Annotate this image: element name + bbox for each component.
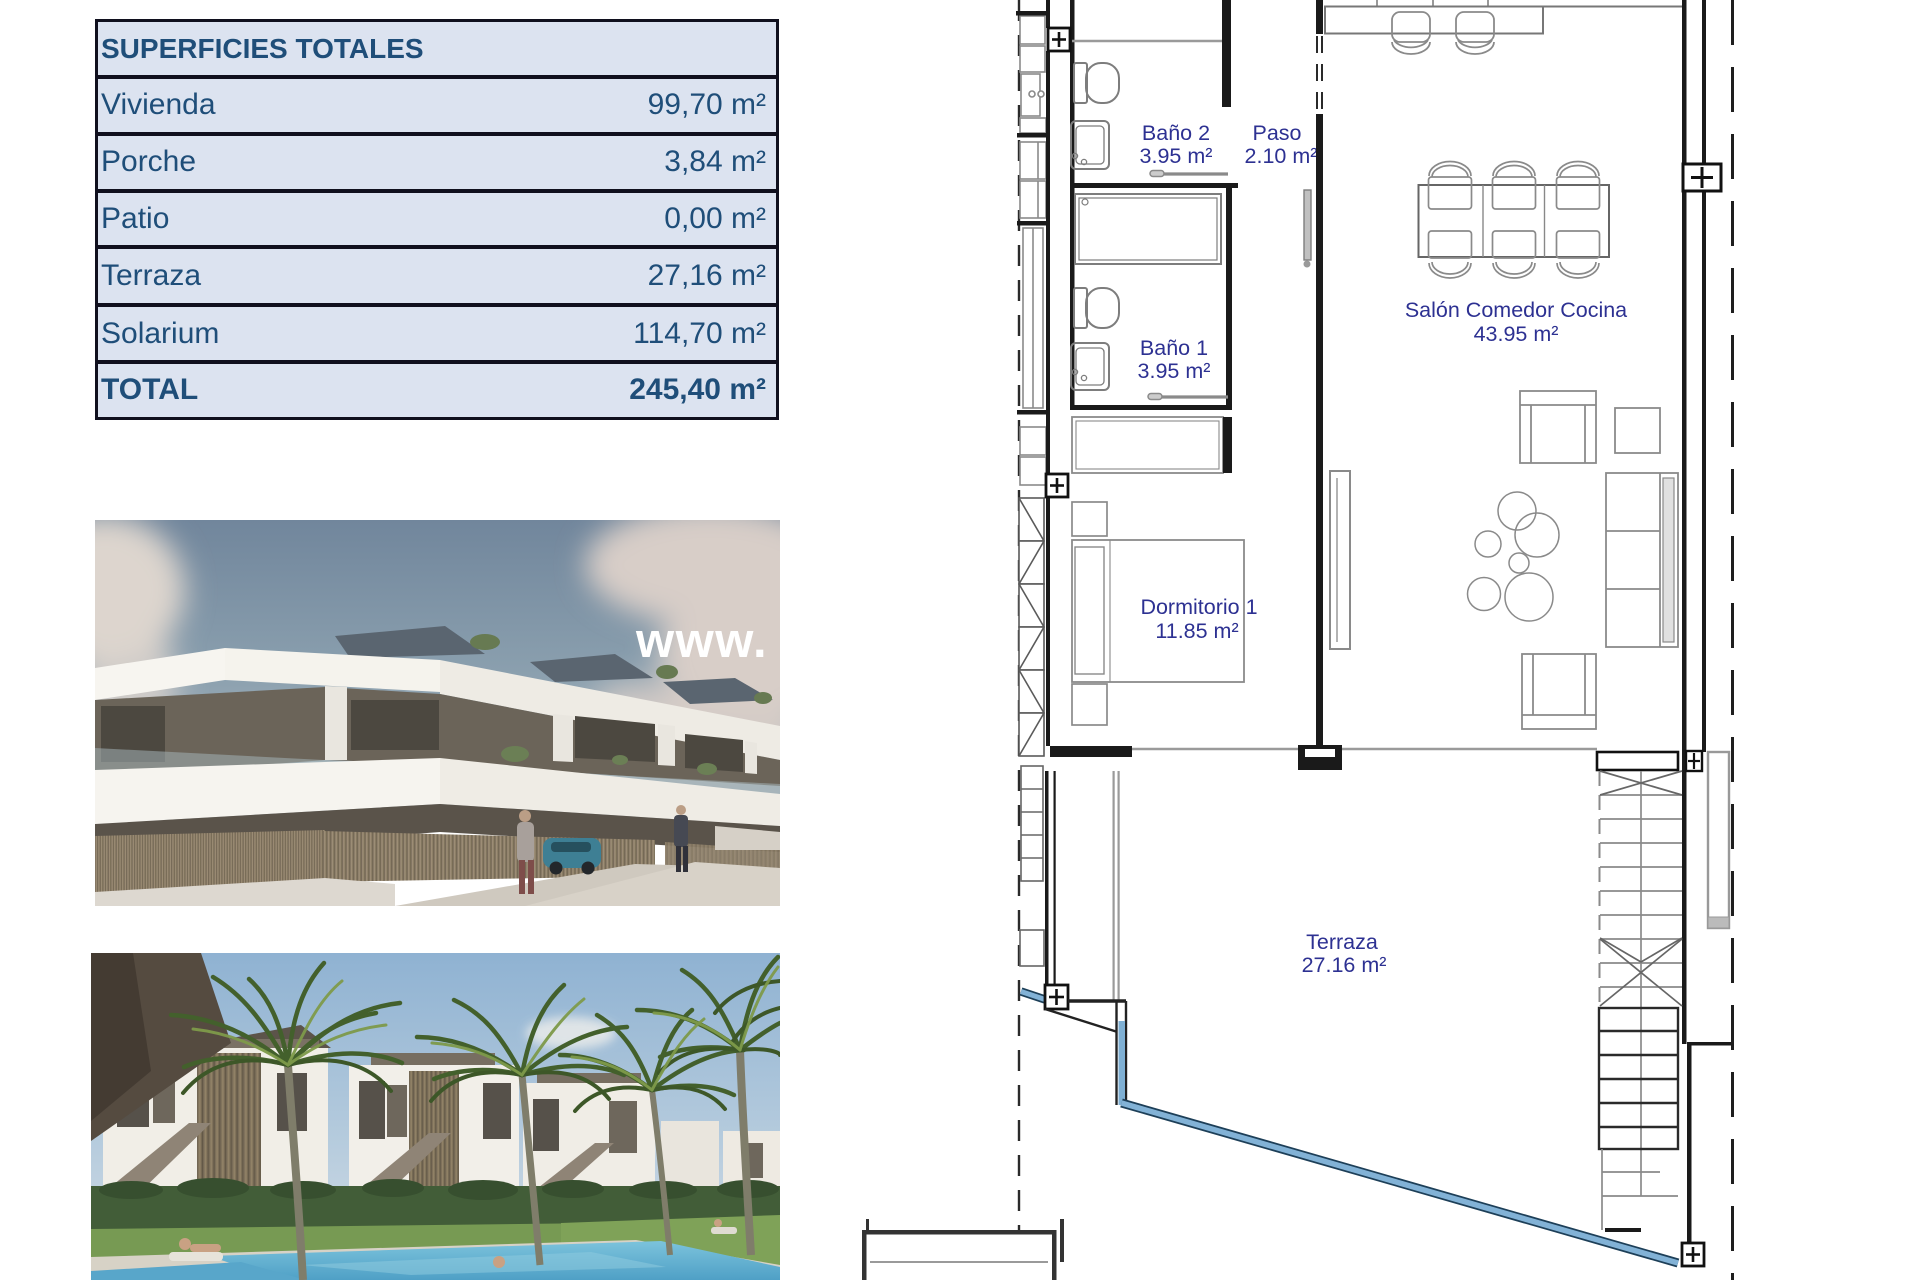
svg-text:Paso: Paso <box>1252 121 1301 145</box>
svg-text:Dormitorio 1: Dormitorio 1 <box>1140 595 1257 619</box>
svg-text:Baño 2: Baño 2 <box>1142 121 1210 145</box>
svg-text:3.95 m²: 3.95 m² <box>1138 359 1211 383</box>
svg-text:2.10 m²: 2.10 m² <box>1245 144 1318 168</box>
svg-text:Salón Comedor Cocina: Salón Comedor Cocina <box>1405 298 1627 322</box>
svg-text:43.95 m²: 43.95 m² <box>1474 322 1559 346</box>
svg-text:Baño 1: Baño 1 <box>1140 336 1208 360</box>
svg-text:3.95 m²: 3.95 m² <box>1140 144 1213 168</box>
svg-text:27.16 m²: 27.16 m² <box>1302 953 1387 977</box>
svg-text:11.85 m²: 11.85 m² <box>1155 619 1238 643</box>
svg-text:Terraza: Terraza <box>1306 930 1378 954</box>
